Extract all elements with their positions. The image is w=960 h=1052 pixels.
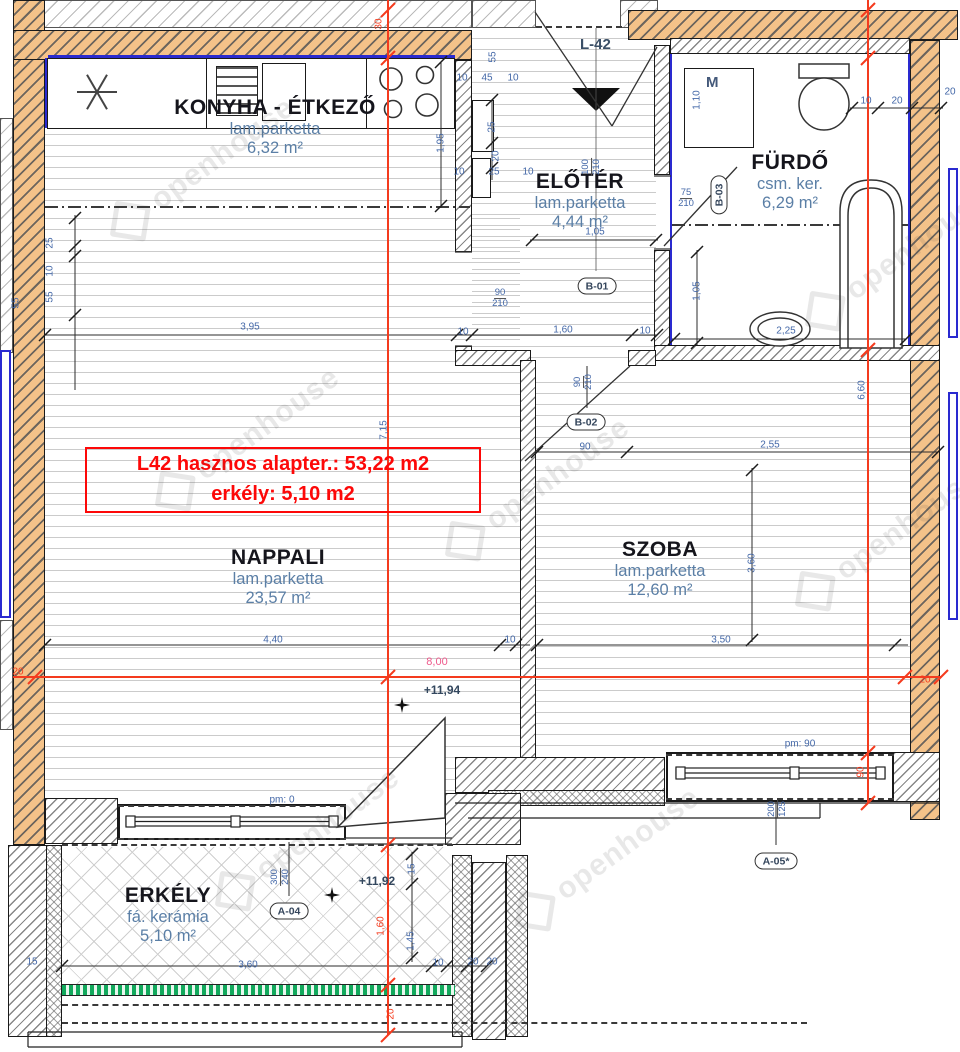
dimension-label: 10	[639, 326, 650, 337]
dimension-label: 30	[374, 18, 385, 29]
elevation-label: +11,94	[424, 683, 460, 697]
dimension-label: 20	[12, 667, 23, 678]
dimension-label: 55	[488, 51, 499, 62]
dimension-label: 6,60	[857, 380, 868, 399]
room-floor: lam.parketta	[615, 562, 706, 581]
room-floor: lam.parketta	[174, 120, 376, 139]
dimension-label: 1,60	[553, 325, 572, 336]
dimension-label: pm: 0	[269, 795, 294, 806]
room-name: FÜRDŐ	[751, 151, 828, 175]
dimension-label: 90	[856, 766, 867, 777]
room-floor: lam.parketta	[231, 570, 325, 589]
dimension-label: 1,95	[436, 133, 447, 152]
dimension-label: 10	[507, 73, 518, 84]
dimension-label: 10	[860, 96, 871, 107]
room-label-furdo: FÜRDŐcsm. ker.6,29 m²	[751, 151, 828, 213]
room-area: 23,57 m²	[231, 589, 325, 608]
elevation-marker-icon	[324, 887, 340, 903]
dimension-label: 1,60	[376, 916, 387, 935]
dimension-label: 25	[45, 237, 56, 248]
dimension-label: 45	[481, 73, 492, 84]
dimension-label: 25	[488, 167, 499, 178]
room-label-szoba: SZOBAlam.parketta12,60 m²	[615, 538, 706, 600]
dimension-label: 10	[522, 167, 533, 178]
room-name: SZOBA	[615, 538, 706, 562]
dimension-label: 8,00	[426, 656, 447, 668]
room-label-konyha: KONYHA - ÉTKEZŐlam.parketta6,32 m²	[174, 96, 376, 158]
elevation-marker-icon	[394, 697, 410, 713]
area-annotation-line1: L42 hasznos alapter.: 53,22 m2	[87, 449, 479, 479]
room-area: 6,29 m²	[751, 194, 828, 213]
dimension-label: 55	[45, 291, 56, 302]
room-floor: lam.parketta	[535, 194, 626, 213]
dimension-label: 55	[11, 297, 22, 308]
dimension-label: 15	[26, 957, 37, 968]
room-area: 4,44 m²	[535, 213, 626, 232]
room-area: 6,32 m²	[174, 139, 376, 158]
dimension-label: 3,60	[238, 960, 257, 971]
door-size-label: 200125	[767, 800, 789, 818]
dimension-label: 20	[919, 675, 930, 686]
dimension-label: 7,15	[379, 420, 390, 439]
dimension-label: 20	[891, 96, 902, 107]
dimension-label: 1,45	[406, 931, 417, 950]
dimension-label: 2,25	[776, 326, 795, 337]
room-label-erkely: ERKÉLYfá. kerámia5,10 m²	[125, 884, 211, 946]
dimension-label: 10	[456, 73, 467, 84]
room-floor: csm. ker.	[751, 175, 828, 194]
labels-layer: L42 hasznos alapter.: 53,22 m2 erkély: 5…	[0, 0, 960, 1052]
elevation-label: +11,92	[359, 874, 395, 888]
opening-tag: A-04	[270, 903, 309, 920]
dimension-label: 3,60	[747, 553, 758, 572]
dimension-label: 20	[944, 87, 955, 98]
dimension-label: 10	[45, 265, 56, 276]
dimension-label: 90	[579, 442, 590, 453]
room-floor: fá. kerámia	[125, 908, 211, 927]
dimension-label: 15	[407, 863, 418, 874]
floor-plan: L42 hasznos alapter.: 53,22 m2 erkély: 5…	[0, 0, 960, 1052]
dimension-label: 3,50	[711, 635, 730, 646]
unit-tag: L-42	[580, 36, 611, 53]
room-name: ERKÉLY	[125, 884, 211, 908]
dimension-label: 20	[491, 150, 502, 161]
dimension-label: 10	[432, 958, 443, 969]
dimension-label: 1,05	[585, 227, 604, 238]
area-annotation: L42 hasznos alapter.: 53,22 m2 erkély: 5…	[85, 447, 481, 513]
room-area: 5,10 m²	[125, 927, 211, 946]
door-size-label: 90210	[573, 374, 595, 390]
dimension-label: 10	[457, 327, 468, 338]
dimension-label: 10	[453, 167, 464, 178]
door-size-label: 300240	[270, 868, 292, 886]
dimension-label: 1,10	[692, 90, 703, 109]
room-area: 12,60 m²	[615, 581, 706, 600]
dimension-label: 10	[504, 635, 515, 646]
room-name: NAPPALI	[231, 546, 325, 570]
room-label-nappali: NAPPALIlam.parketta23,57 m²	[231, 546, 325, 608]
opening-tag: A-05*	[755, 853, 798, 870]
dimension-label: 1,05	[692, 281, 703, 300]
door-size-label: 75210	[678, 188, 694, 210]
door-size-label: 90210	[492, 288, 508, 310]
opening-tag: B-03	[711, 176, 728, 215]
door-size-label: 100210	[581, 158, 603, 176]
dimension-label: 20	[486, 957, 497, 968]
dimension-label: 20	[467, 957, 478, 968]
opening-tag: B-02	[567, 414, 606, 431]
room-name: KONYHA - ÉTKEZŐ	[174, 96, 376, 120]
dimension-label: 25	[487, 121, 498, 132]
room-label-eloter: ELŐTÉRlam.parketta4,44 m²	[535, 170, 626, 232]
dimension-label: 4,40	[263, 635, 282, 646]
area-annotation-line2: erkély: 5,10 m2	[87, 479, 479, 509]
dimension-label: 20	[386, 1008, 397, 1019]
dimension-label: 3,95	[240, 322, 259, 333]
opening-tag: B-01	[578, 278, 617, 295]
dimension-label: pm: 90	[785, 739, 816, 750]
washing-machine-label: M	[706, 74, 719, 91]
dimension-label: 2,55	[760, 440, 779, 451]
